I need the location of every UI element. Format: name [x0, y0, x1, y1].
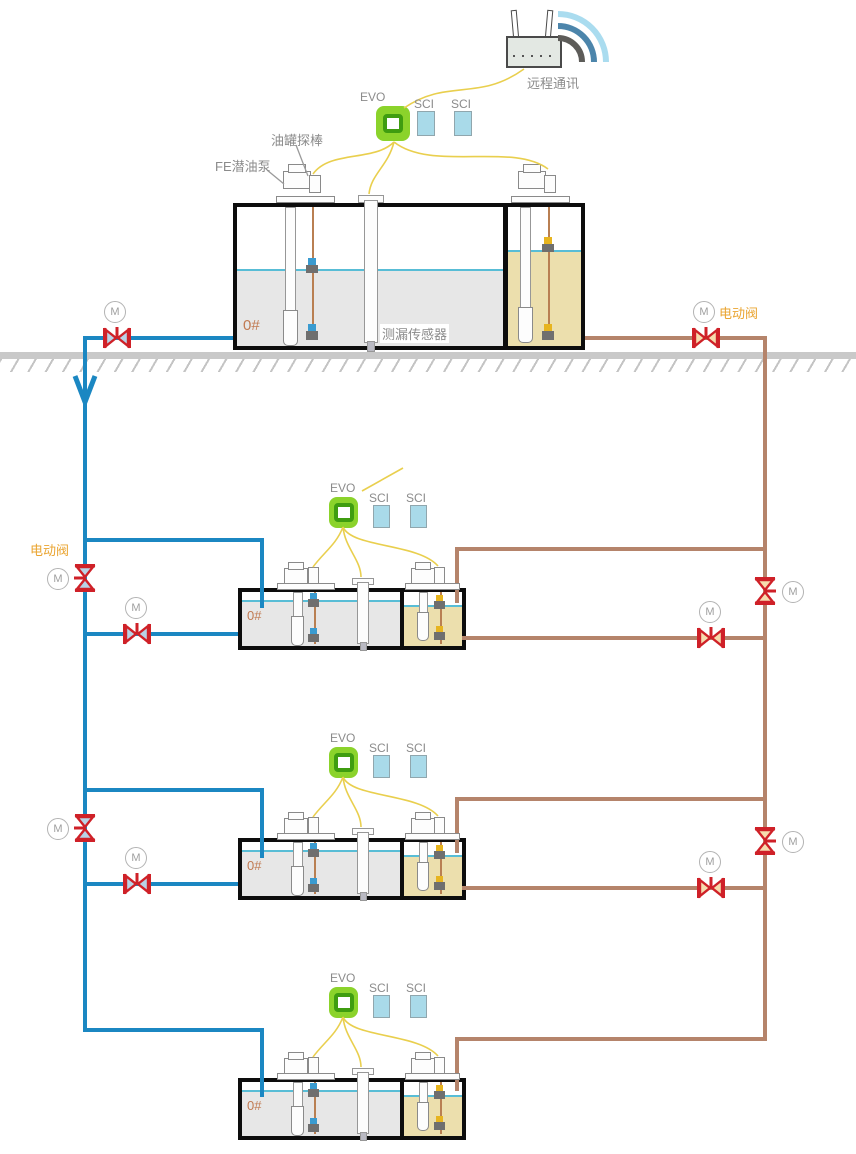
evo-controller: [329, 747, 358, 778]
motor-valve: [74, 813, 96, 843]
supply-pipe-drop: [260, 538, 264, 608]
probe-float-base: [434, 601, 445, 609]
sci-module: [417, 111, 435, 136]
leak-sensor-tip: [367, 341, 375, 352]
return-pipe: [455, 1037, 767, 1041]
probe-float-base: [434, 851, 445, 859]
pump-head-cap: [415, 1052, 431, 1060]
motor-label: M: [131, 602, 140, 614]
pump-head-cap: [523, 164, 541, 173]
sci-label: SCI: [414, 97, 434, 111]
sci-label: SCI: [406, 741, 426, 755]
probe-head: [434, 817, 445, 834]
fuel-grade-label: 0#: [247, 1098, 261, 1113]
pump-head-cap: [288, 562, 304, 570]
probe-head: [434, 1057, 445, 1074]
probe-float-base: [306, 265, 318, 273]
supply-pipe-drop: [260, 788, 264, 858]
sci-module: [410, 995, 427, 1018]
evo-label: EVO: [360, 90, 385, 104]
motor-valve: [122, 623, 152, 645]
fuel-compartment-right: [404, 855, 462, 896]
tank-probe: [312, 207, 314, 340]
probe-float-base: [434, 1091, 445, 1099]
sci-module: [454, 111, 472, 136]
submersible-pump: [417, 862, 429, 891]
sci-module: [373, 995, 390, 1018]
manhole-plate: [511, 196, 570, 203]
leak-sensor-tip: [360, 642, 367, 651]
supply-pipe: [83, 788, 264, 792]
probe-float-base: [434, 882, 445, 890]
fuel-tank: [238, 588, 466, 650]
motor-valve: [696, 877, 726, 899]
probe-float-base: [434, 632, 445, 640]
leak-sensor-label: 测漏传感器: [380, 324, 449, 343]
motor-indicator: M: [699, 851, 721, 873]
manhole-plate: [405, 583, 460, 590]
pump-head: [283, 171, 311, 189]
supply-pipe: [83, 1028, 264, 1032]
electric-valve-label: 电动阀: [719, 303, 758, 322]
motor-label: M: [788, 836, 797, 848]
evo-screen: [383, 114, 403, 133]
probe-float: [308, 258, 316, 265]
submersible-pump: [291, 866, 304, 896]
return-pipe-drop: [455, 1037, 459, 1091]
probe-float-base: [434, 1122, 445, 1130]
evo-screen: [334, 753, 354, 772]
fuel-grade-label: 0#: [247, 608, 261, 623]
leak-sensor-tip: [360, 892, 367, 901]
sci-label: SCI: [406, 491, 426, 505]
pump-drop-tube: [419, 1082, 428, 1104]
motor-indicator: M: [782, 831, 804, 853]
ground-hatching: [0, 359, 856, 372]
fuel-compartment-left: [242, 1090, 400, 1136]
return-pipe-main: [763, 336, 767, 1041]
submersible-pump: [291, 616, 304, 646]
tank-probe: [548, 207, 550, 340]
manhole-plate: [277, 1073, 335, 1080]
return-pipe: [585, 336, 767, 340]
pump-drop-tube: [293, 1082, 303, 1108]
manhole-plate: [277, 583, 335, 590]
submersible-pump: [417, 612, 429, 641]
motor-valve: [754, 826, 776, 856]
leak-sensor-tip: [360, 1132, 367, 1141]
probe-float-base: [308, 849, 319, 857]
fuel-compartment-right: [404, 605, 462, 646]
probe-float-base: [308, 634, 319, 642]
supply-pipe-drop: [260, 1028, 264, 1097]
electric-valve-label: 电动阀: [30, 540, 69, 559]
submersible-pump: [518, 307, 533, 343]
pump-drop-tube: [285, 207, 296, 312]
evo-controller: [376, 106, 410, 141]
submersible-pump: [417, 1102, 429, 1131]
probe-head: [308, 817, 319, 834]
probe-float-base: [308, 599, 319, 607]
probe-float-base: [542, 331, 554, 340]
evo-label: EVO: [330, 481, 355, 495]
leak-sensor-tube: [364, 200, 378, 343]
leak-sensor-tube: [357, 832, 369, 894]
ground-line: [0, 352, 856, 359]
probe-head: [309, 175, 321, 193]
fuel-compartment-right: [404, 1095, 462, 1136]
probe-float-base: [542, 244, 554, 252]
return-pipe: [455, 547, 767, 551]
fuel-tank: [238, 1078, 466, 1140]
pump-drop-tube: [419, 842, 428, 864]
evo-screen: [334, 993, 354, 1012]
evo-label: EVO: [330, 731, 355, 745]
motor-label: M: [788, 586, 797, 598]
pump-head: [411, 818, 435, 834]
motor-label: M: [705, 856, 714, 868]
router-leds: [513, 55, 551, 57]
sci-label: SCI: [406, 981, 426, 995]
manhole-plate: [405, 833, 460, 840]
motor-valve: [102, 327, 132, 349]
sci-label: SCI: [369, 491, 389, 505]
fuel-grade-label: 0#: [243, 317, 260, 334]
motor-valve: [754, 576, 776, 606]
motor-label: M: [53, 823, 62, 835]
pump-head: [411, 1058, 435, 1074]
remote-comm-label: 远程通讯: [527, 73, 579, 92]
fuel-grade-label: 0#: [247, 858, 261, 873]
probe-float-base: [308, 1089, 319, 1097]
motor-valve: [74, 563, 96, 593]
pump-head-cap: [288, 1052, 304, 1060]
manhole-plate: [277, 833, 335, 840]
pump-head: [284, 818, 308, 834]
motor-indicator: M: [125, 597, 147, 619]
motor-valve: [691, 327, 721, 349]
tank-probe-label: 油罐探棒: [271, 130, 323, 149]
pump-head-cap: [415, 812, 431, 820]
motor-indicator: M: [782, 581, 804, 603]
submersible-pump: [291, 1106, 304, 1136]
probe-head: [308, 1057, 319, 1074]
evo-controller: [329, 497, 358, 528]
pump-head: [284, 1058, 308, 1074]
leak-sensor-tube: [357, 1072, 369, 1134]
sci-label: SCI: [451, 97, 471, 111]
motor-label: M: [110, 306, 119, 318]
manhole-plate: [405, 1073, 460, 1080]
motor-valve: [122, 873, 152, 895]
fuel-compartment-left: [242, 850, 400, 896]
evo-label: EVO: [330, 971, 355, 985]
pump-head-cap: [288, 812, 304, 820]
supply-pipe: [83, 538, 264, 542]
sci-module: [410, 505, 427, 528]
motor-indicator: M: [47, 568, 69, 590]
pump-head: [518, 171, 546, 189]
pump-head-cap: [288, 164, 306, 173]
motor-indicator: M: [125, 847, 147, 869]
motor-indicator: M: [693, 301, 715, 323]
motor-label: M: [699, 306, 708, 318]
motor-label: M: [131, 852, 140, 864]
pump-drop-tube: [419, 592, 428, 614]
probe-float: [544, 324, 552, 331]
sci-label: SCI: [369, 741, 389, 755]
sci-module: [410, 755, 427, 778]
supply-pipe-main: [83, 336, 87, 1032]
return-pipe: [455, 797, 767, 801]
motor-valve: [696, 627, 726, 649]
leak-sensor-tube: [357, 582, 369, 644]
pump-drop-tube: [520, 207, 531, 309]
pump-head: [284, 568, 308, 584]
supply-pipe-branch: [83, 632, 238, 636]
probe-float-base: [308, 1124, 319, 1132]
probe-float-base: [308, 884, 319, 892]
pump-head: [411, 568, 435, 584]
evo-controller: [329, 987, 358, 1018]
fuel-tank: [238, 838, 466, 900]
pump-head-cap: [415, 562, 431, 570]
motor-label: M: [705, 606, 714, 618]
piping-diagram: 远程通讯 EVO SCI SCI 油罐探棒 FE潜油泵 0# 测漏传感器: [0, 0, 856, 1154]
probe-float: [308, 324, 316, 331]
fe-pump-label: FE潜油泵: [215, 156, 271, 175]
return-pipe-drop: [455, 797, 459, 853]
sci-module: [373, 755, 390, 778]
submersible-pump: [283, 310, 298, 346]
pump-drop-tube: [293, 842, 303, 868]
sci-label: SCI: [369, 981, 389, 995]
motor-label: M: [53, 573, 62, 585]
pump-drop-tube: [293, 592, 303, 618]
probe-head: [434, 567, 445, 584]
return-pipe-drop: [455, 547, 459, 603]
flow-arrow-icon: [72, 374, 98, 408]
motor-indicator: M: [104, 301, 126, 323]
sci-module: [373, 505, 390, 528]
motor-indicator: M: [699, 601, 721, 623]
wifi-signal-icon: [552, 2, 618, 66]
fuel-compartment-left: [242, 600, 400, 646]
probe-head: [308, 567, 319, 584]
evo-screen: [334, 503, 354, 522]
probe-float-base: [306, 331, 318, 340]
supply-pipe-branch: [83, 882, 238, 886]
probe-float: [544, 237, 552, 244]
motor-indicator: M: [47, 818, 69, 840]
probe-head: [544, 175, 556, 193]
manhole-plate: [276, 196, 335, 203]
